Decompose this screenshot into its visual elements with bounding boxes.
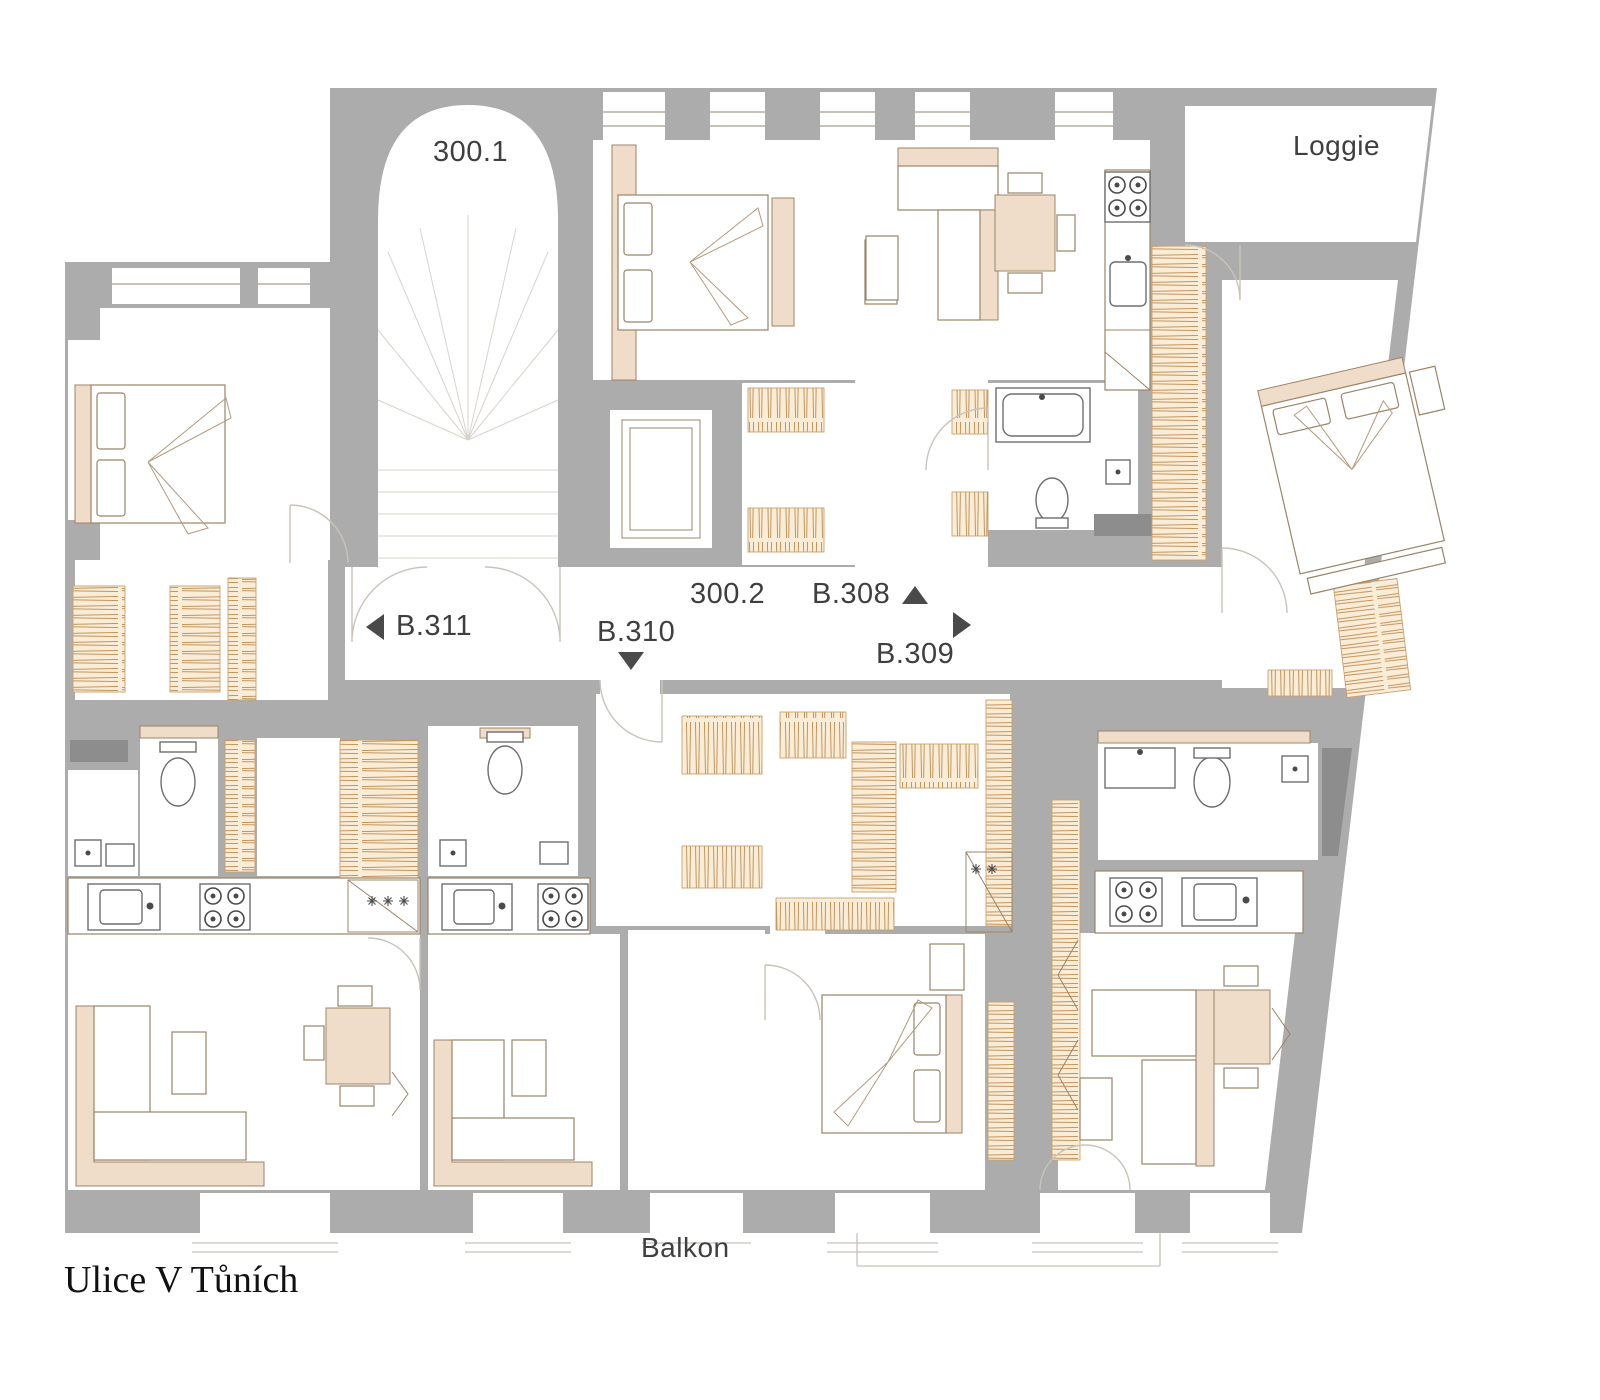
bed-top-left xyxy=(75,385,231,534)
room-corridor xyxy=(345,567,1240,680)
unit-id-b311: B.311 xyxy=(396,610,472,643)
unit-id-b309: B.309 xyxy=(876,638,954,670)
label-loggia: Loggie xyxy=(1293,130,1380,162)
sofa-unit4 xyxy=(1080,990,1214,1166)
floor-plan-canvas: 300.1 Loggie 300.2 B.311 B.310 B.308 B.3… xyxy=(0,0,1600,1400)
balcony-railing xyxy=(857,1233,1160,1266)
label-staircase: 300.1 xyxy=(433,136,508,169)
label-unit-b311: B.311 xyxy=(366,610,472,643)
kitchen-unit4 xyxy=(1095,871,1303,933)
label-street: Ulice V Tůních xyxy=(64,1258,298,1302)
arrow-left-icon xyxy=(366,614,384,640)
label-corridor: 300.2 xyxy=(690,578,765,611)
arrow-down-icon xyxy=(618,652,644,670)
floor-plan-drawing xyxy=(0,0,1600,1400)
label-unit-b309: B.309 xyxy=(876,638,954,671)
kitchen-unit2 xyxy=(428,878,590,934)
kitchen-top-right xyxy=(1105,170,1150,390)
unit-id-b310: B.310 xyxy=(597,616,675,648)
kitchen-unit1 xyxy=(68,878,420,934)
unit-id-b308: B.308 xyxy=(812,578,890,611)
room-elevator xyxy=(610,410,712,548)
label-unit-b308: B.308 xyxy=(812,578,928,611)
label-balcony: Balkon xyxy=(641,1232,730,1264)
arrow-up-icon xyxy=(902,586,928,604)
label-unit-b310: B.310 xyxy=(597,616,675,649)
arrow-right-icon xyxy=(953,612,971,638)
room-loggia xyxy=(1185,106,1432,242)
